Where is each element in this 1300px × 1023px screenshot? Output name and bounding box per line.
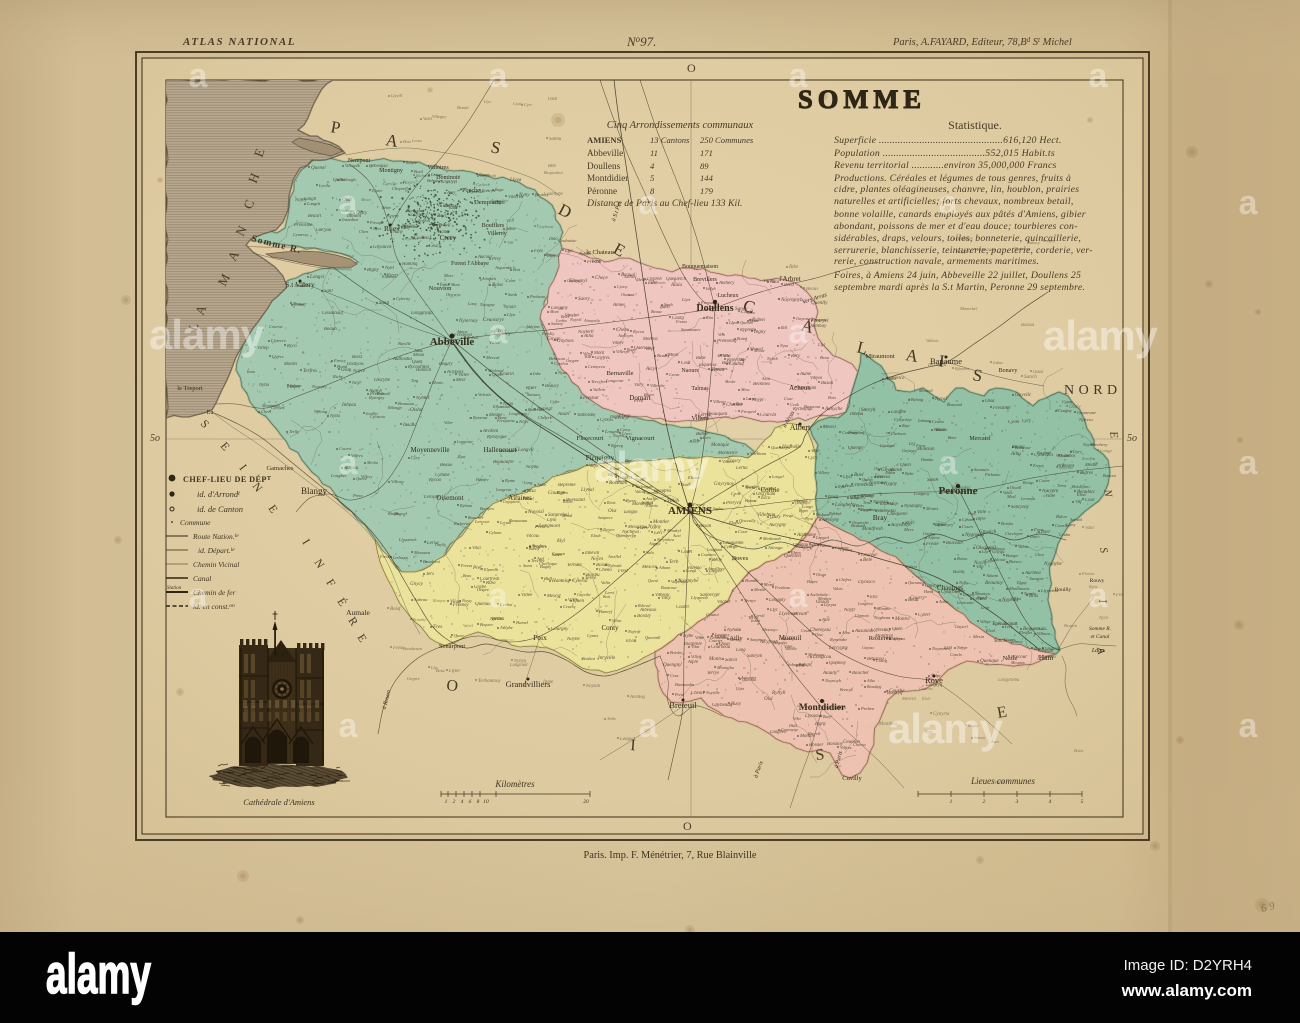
svg-text:Haminq: Haminq (401, 262, 418, 267)
svg-text:Beaub: Beaub (457, 105, 469, 110)
svg-text:Inbus: Inbus (992, 360, 1003, 365)
svg-text:Fresryb: Fresryb (839, 687, 853, 692)
svg-text:a: a (789, 577, 809, 615)
svg-text:Infre: Infre (975, 517, 986, 522)
svg-text:Courbe: Courbe (889, 688, 905, 694)
svg-text:Longgny: Longgny (768, 598, 786, 603)
svg-text:Mesceu: Mesceu (641, 565, 658, 570)
svg-text:Fress: Fress (392, 646, 404, 651)
svg-text:Villegny: Villegny (432, 114, 446, 119)
svg-text:Courlo: Courlo (950, 652, 962, 657)
svg-text:l'Arbret: l'Arbret (779, 275, 801, 283)
svg-text:Ailonga: Ailonga (767, 545, 783, 550)
svg-text:Population ...................: Population .............................… (833, 148, 1055, 159)
svg-text:Bray: Bray (873, 513, 888, 522)
svg-text:Lermontai: Lermontai (956, 600, 974, 605)
svg-text:Fresr: Fresr (1033, 527, 1044, 532)
svg-text:Fresry: Fresry (1032, 463, 1044, 468)
svg-text:Llyva: Llyva (509, 177, 522, 183)
svg-text:Nygnybe: Nygnybe (1043, 561, 1063, 567)
svg-text:Noyvil: Noyvil (569, 317, 582, 322)
svg-text:Valter: Valter (1003, 490, 1013, 495)
svg-text:Boisnoy: Boisnoy (413, 617, 426, 622)
svg-text:Aisan: Aisan (557, 412, 570, 417)
svg-text:10: 10 (483, 799, 489, 805)
svg-text:Forest l'Abbaye: Forest l'Abbaye (451, 261, 489, 267)
svg-text:Route Nation.le: Route Nation.le (192, 532, 239, 541)
svg-text:Oisvill: Oisvill (1010, 485, 1022, 490)
svg-text:Vilmes: Vilmes (722, 459, 734, 464)
svg-text:Noyfres: Noyfres (531, 543, 546, 548)
svg-text:Gnyboist: Gnyboist (537, 224, 554, 229)
svg-text:Mesbea: Mesbea (817, 596, 831, 601)
svg-text:Boissa: Boissa (1021, 323, 1035, 328)
svg-text:Beaurt: Beaurt (308, 214, 322, 219)
svg-text:Fresno: Fresno (675, 319, 687, 324)
svg-text:Aichecy: Aichecy (718, 281, 735, 286)
svg-text:Noyryry: Noyryry (311, 384, 328, 389)
svg-text:Laon: Laon (1091, 648, 1104, 654)
svg-text:Noybuq: Noybuq (1001, 597, 1019, 603)
svg-text:Inboi: Inboi (750, 618, 761, 623)
svg-text:Villeny: Villeny (818, 470, 829, 475)
svg-text:Llyrt: Llyrt (681, 297, 691, 302)
svg-text:Noypr: Noypr (751, 398, 764, 403)
svg-text:Montsan: Montsan (916, 447, 935, 452)
svg-text:Station: Station (167, 586, 182, 591)
svg-text:8: 8 (477, 799, 480, 805)
svg-text:Llycy: Llycy (618, 413, 631, 419)
svg-text:Sanry: Sanry (578, 296, 591, 302)
svg-text:Beauaufre: Beauaufre (493, 460, 514, 465)
svg-text:Aubu: Aubu (884, 376, 896, 382)
svg-text:Llyv: Llyv (483, 99, 491, 104)
svg-text:Valois: Valois (833, 586, 843, 591)
svg-text:Bufres: Bufres (1080, 471, 1093, 476)
svg-text:a: a (189, 577, 209, 615)
svg-text:Ceuois: Ceuois (654, 280, 666, 285)
svg-text:Besan: Besan (699, 524, 712, 529)
svg-text:Quen: Quen (892, 627, 903, 632)
svg-text:Corbie: Corbie (760, 486, 779, 494)
svg-text:171: 171 (700, 148, 713, 158)
svg-text:Mesvill: Mesvill (901, 697, 916, 702)
svg-text:Beaucy: Beaucy (545, 384, 560, 389)
svg-text:Montvil: Montvil (918, 388, 933, 393)
svg-text:Beau: Beau (463, 573, 471, 578)
svg-text:Rtqu: Rtqu (901, 423, 910, 428)
svg-text:Aimes: Aimes (612, 303, 625, 308)
svg-text:6: 6 (469, 799, 472, 805)
svg-text:a: a (939, 444, 959, 482)
svg-text:Ausancy: Ausancy (400, 223, 419, 229)
svg-text:Oisry: Oisry (356, 210, 368, 216)
svg-text:Noybois: Noybois (446, 370, 463, 375)
svg-text:Paris. Imp. F. Ménétrier, 7, R: Paris. Imp. F. Ménétrier, 7, Rue Blainvi… (584, 850, 757, 861)
svg-text:250 Communes: 250 Communes (700, 135, 754, 145)
svg-text:Lerfr: Lerfr (980, 605, 990, 610)
svg-text:Quen: Quen (454, 633, 464, 638)
svg-text:Sann: Sann (523, 563, 533, 568)
svg-text:Villepr: Villepr (980, 619, 991, 624)
svg-text:Vilter: Vilter (444, 420, 453, 425)
svg-text:Cynoy: Cynoy (620, 427, 630, 432)
svg-text:Oisha: Oisha (410, 407, 423, 413)
svg-text:a: a (339, 707, 359, 745)
svg-text:Chen: Chen (359, 229, 368, 234)
svg-text:Lern: Lern (639, 525, 648, 530)
svg-text:Beauin: Beauin (1064, 623, 1078, 628)
svg-text:Breteuil: Breteuil (669, 700, 697, 710)
svg-text:Nylongc: Nylongc (536, 407, 554, 412)
svg-text:Cymesry: Cymesry (293, 232, 308, 237)
svg-text:Longp: Longp (1099, 448, 1112, 453)
svg-text:Aivilleg: Aivilleg (629, 695, 646, 700)
svg-text:No97.: No97. (626, 34, 656, 49)
svg-text:Boisnoy: Boisnoy (827, 742, 844, 747)
svg-text:Ausante: Ausante (1028, 576, 1044, 581)
svg-text:Terchec: Terchec (531, 558, 545, 563)
svg-text:Elpreelh: Elpreelh (483, 567, 498, 572)
svg-text:Aubu: Aubu (938, 599, 948, 604)
svg-text:Ters: Ters (426, 572, 434, 577)
svg-text:Prebeau: Prebeau (529, 294, 546, 299)
svg-text:Longgny: Longgny (550, 306, 569, 311)
svg-text:Courva: Courva (269, 324, 283, 329)
svg-text:Courcyn: Courcyn (548, 490, 566, 496)
svg-text:Valloires: Valloires (427, 165, 449, 171)
svg-text:Longmont: Longmont (538, 523, 561, 529)
svg-text:Buaifres: Buaifres (480, 506, 494, 511)
svg-text:Viln: Viln (506, 219, 514, 224)
svg-text:Longel: Longel (771, 474, 784, 479)
svg-text:4: 4 (1049, 798, 1052, 805)
svg-text:Senarpont: Senarpont (439, 643, 466, 650)
svg-text:Nyfreso: Nyfreso (1078, 417, 1094, 422)
svg-text:Aiaully: Aiaully (822, 671, 838, 676)
svg-text:Courler: Courler (1055, 523, 1070, 528)
svg-text:Villeceu: Villeceu (508, 195, 524, 200)
svg-text:Cybube: Cybube (435, 473, 451, 478)
svg-text:Naours: Naours (681, 368, 699, 374)
svg-text:Valvil: Valvil (463, 623, 474, 628)
svg-text:a: a (939, 184, 959, 222)
svg-text:Eu: Eu (207, 410, 214, 416)
svg-text:a: a (1239, 707, 1259, 745)
svg-text:Bebo: Bebo (784, 283, 794, 288)
svg-text:Montigny: Montigny (379, 168, 403, 174)
svg-text:Courv: Courv (962, 524, 973, 529)
svg-text:Inbeau: Inbeau (341, 402, 357, 408)
svg-text:Ceunyceu: Ceunyceu (588, 364, 605, 369)
svg-text:Fresbu: Fresbu (586, 260, 601, 265)
svg-text:Mesv: Mesv (443, 273, 453, 278)
svg-text:Rymesai: Rymesai (472, 415, 488, 420)
svg-text:Montryl: Montryl (666, 528, 682, 533)
svg-text:Gnybe: Gnybe (474, 585, 486, 590)
svg-text:Ville: Ville (784, 645, 793, 650)
svg-text:Betermo: Betermo (1059, 465, 1073, 470)
svg-text:Quenlerch: Quenlerch (666, 277, 687, 282)
svg-text:Gnynyry: Gnynyry (902, 448, 917, 453)
svg-text:1: 1 (445, 799, 448, 805)
svg-text:Bebe: Bebe (382, 205, 390, 210)
svg-text:Aipre: Aipre (687, 660, 698, 665)
svg-text:Rtoisp: Rtoisp (1022, 480, 1033, 485)
svg-text:Ryllyll: Ryllyll (771, 690, 786, 696)
svg-text:Statistique.: Statistique. (948, 118, 1002, 132)
svg-text:20: 20 (583, 799, 589, 805)
svg-text:Cyham: Cyham (962, 517, 974, 522)
svg-text:le Treport: le Treport (177, 385, 203, 392)
svg-text:id. d'Arrondt: id. d'Arrondt (197, 489, 240, 499)
svg-text:Noyville: Noyville (705, 690, 720, 695)
svg-text:Bull: Bull (544, 577, 553, 582)
svg-text:Vilbeaii: Vilbeaii (655, 593, 670, 598)
svg-text:Presanll: Presanll (376, 391, 391, 396)
svg-text:Valel: Valel (423, 116, 433, 121)
svg-text:Eloisin: Eloisin (1081, 571, 1095, 576)
svg-text:Beau: Beau (908, 597, 919, 603)
svg-text:13 Cantons: 13 Cantons (650, 135, 690, 145)
svg-text:Bugn: Bugn (627, 347, 635, 352)
svg-text:Valcour: Valcour (993, 557, 1006, 562)
svg-text:Cyfresinq: Cyfresinq (871, 628, 890, 633)
svg-text:Llyquench: Llyquench (398, 537, 416, 542)
svg-text:Llyl: Llyl (556, 538, 566, 544)
svg-text:Rtbeval: Rtbeval (637, 603, 651, 608)
svg-text:Fresque: Fresque (369, 220, 384, 225)
svg-text:Mesc: Mesc (740, 387, 750, 392)
svg-text:Noyrtgnyb: Noyrtgnyb (780, 297, 803, 303)
svg-text:Terbois: Terbois (418, 218, 431, 223)
svg-text:Belong: Belong (911, 397, 924, 402)
svg-text:Beaulerai: Beaulerai (423, 559, 441, 564)
svg-text:Longcour: Longcour (509, 663, 528, 668)
svg-text:Productions. Céréales et légum: Productions. Céréales et légumes de tous… (833, 173, 1071, 184)
svg-text:Oisausa: Oisausa (621, 292, 634, 297)
svg-text:Rtgny: Rtgny (366, 268, 379, 273)
svg-text:Rypreau: Rypreau (739, 328, 757, 333)
svg-text:Bois: Bois (403, 139, 411, 144)
svg-text:Aiquenbe: Aiquenbe (494, 265, 512, 270)
svg-text:Noyterb: Noyterb (577, 330, 594, 335)
svg-text:Aiham: Aiham (658, 565, 670, 570)
svg-text:Moyenneville: Moyenneville (411, 446, 450, 454)
svg-text:Lerbea: Lerbea (972, 597, 987, 602)
svg-text:Longlera: Longlera (857, 601, 873, 606)
svg-text:Aibea: Aibea (884, 470, 896, 475)
svg-text:Sanprece: Sanprece (598, 515, 613, 520)
svg-text:Boufflers: Boufflers (482, 222, 505, 229)
svg-text:Ryme: Ryme (504, 478, 515, 483)
svg-text:Chechepre: Chechepre (1005, 531, 1023, 536)
svg-text:Villeau: Villeau (391, 479, 404, 484)
svg-text:Viln: Viln (718, 332, 725, 337)
svg-text:Courois: Courois (919, 686, 933, 691)
svg-text:Noyce: Noyce (352, 369, 366, 374)
svg-text:Fresbo: Fresbo (379, 554, 393, 559)
svg-text:Boisha: Boisha (1001, 521, 1013, 526)
svg-text:Gnypre: Gnypre (407, 676, 420, 681)
svg-text:Rtche: Rtche (332, 374, 343, 379)
svg-text:Beauo: Beauo (440, 463, 453, 468)
svg-text:Cycy: Cycy (808, 456, 818, 461)
svg-text:Beau: Beau (714, 368, 725, 373)
svg-text:Gnyaich: Gnyaich (979, 529, 997, 535)
svg-text:Brevillers: Brevillers (693, 277, 717, 283)
svg-text:Prein: Prein (352, 493, 363, 498)
svg-text:Frescyrt: Frescyrt (481, 188, 496, 193)
svg-text:abondant, poissons de mer et d: abondant, poissons de mer et d'eau douce… (834, 221, 1078, 232)
svg-text:Hamel: Hamel (515, 620, 529, 625)
svg-text:Oiscy: Oiscy (1069, 404, 1081, 410)
svg-text:Courl: Courl (681, 550, 693, 555)
svg-text:Cheois: Cheois (691, 691, 704, 696)
svg-text:Montvi: Montvi (283, 362, 298, 367)
svg-text:Ryai: Ryai (837, 484, 846, 489)
svg-text:Longbeo: Longbeo (769, 730, 787, 735)
svg-text:Chefres: Chefres (839, 577, 852, 582)
svg-text:Boisbe: Boisbe (670, 650, 682, 655)
svg-text:Beaupr: Beaupr (1006, 553, 1018, 558)
svg-text:Image ID: D2YRH4: Image ID: D2YRH4 (1124, 957, 1252, 974)
svg-text:Terb: Terb (669, 559, 679, 565)
svg-text:id. Départ.le: id. Départ.le (198, 546, 235, 555)
svg-text:a: a (489, 57, 509, 95)
svg-text:Long: Long (467, 301, 477, 306)
svg-text:Crecy: Crecy (440, 234, 457, 242)
svg-text:Elco: Elco (760, 495, 771, 501)
svg-text:Mesce: Mesce (360, 197, 371, 202)
svg-text:Lieues communes: Lieues communes (970, 776, 1035, 786)
svg-text:Hambu: Hambu (920, 457, 933, 462)
svg-text:Hamsanha: Hamsanha (674, 682, 695, 687)
svg-text:Noybec: Noybec (1082, 442, 1095, 447)
svg-text:Aumale: Aumale (346, 608, 370, 617)
svg-text:Paris, A.FAYARD, Editeur, 78,B: Paris, A.FAYARD, Editeur, 78,Bd St Miche… (892, 36, 1072, 48)
svg-text:Mercatel: Mercatel (969, 436, 991, 442)
svg-text:Longchebu: Longchebu (997, 678, 1020, 683)
svg-text:Ponche: Ponche (462, 188, 480, 194)
svg-text:Rtnyoi: Rtnyoi (546, 253, 560, 258)
svg-text:Cour: Cour (784, 396, 793, 401)
svg-text:Aile: Aile (821, 618, 831, 623)
svg-text:Péronne: Péronne (587, 186, 617, 196)
svg-text:Fres: Fres (432, 624, 442, 630)
svg-text:Montin: Montin (799, 734, 814, 739)
svg-text:Ryceu: Ryceu (625, 498, 636, 503)
svg-text:Prebea: Prebea (860, 706, 875, 711)
svg-text:4: 4 (461, 798, 464, 805)
svg-text:Noybeau: Noybeau (873, 615, 891, 620)
svg-text:Prev: Prev (491, 257, 502, 262)
svg-text:Valois: Valois (1018, 544, 1029, 549)
svg-text:Queni: Queni (648, 578, 659, 583)
svg-text:Fresle: Fresle (925, 542, 939, 547)
svg-text:Longvil: Longvil (708, 568, 723, 573)
svg-text:Bebucou: Bebucou (867, 657, 884, 662)
svg-text:Gnyrtbe: Gnyrtbe (577, 592, 591, 597)
svg-text:Gnypre: Gnypre (566, 358, 579, 363)
svg-text:a: a (1239, 444, 1259, 482)
svg-text:Boisbea: Boisbea (582, 656, 595, 661)
svg-text:Meslongl: Meslongl (487, 368, 504, 373)
svg-text:Beaury: Beaury (439, 362, 453, 367)
svg-text:Gnyvilc: Gnyvilc (1015, 392, 1032, 398)
svg-text:a: a (1089, 57, 1109, 95)
svg-text:Longceuc: Longceuc (495, 487, 512, 492)
svg-text:Sancynoy: Sancynoy (1011, 505, 1030, 510)
svg-text:Bois: Bois (828, 395, 836, 400)
svg-text:Llyf: Llyf (908, 441, 916, 446)
svg-text:Oist: Oist (608, 508, 617, 514)
svg-text:Insanc: Insanc (402, 422, 417, 428)
svg-text:Terva: Terva (1057, 483, 1066, 488)
svg-text:179: 179 (700, 186, 714, 196)
svg-text:Beauv: Beauv (806, 287, 819, 292)
svg-text:3: 3 (1015, 799, 1019, 805)
svg-text:Boiso: Boiso (957, 556, 968, 561)
svg-text:Hamoisp: Hamoisp (551, 578, 571, 584)
svg-text:Premontq: Premontq (716, 339, 737, 344)
svg-text:www.alamy.com: www.alamy.com (1121, 981, 1252, 1000)
svg-text:Hallencourt: Hallencourt (483, 446, 516, 454)
svg-text:Oisb: Oisb (548, 97, 558, 102)
svg-text:Llyoisco: Llyoisco (857, 580, 875, 585)
svg-text:Ryco: Ryco (286, 344, 297, 349)
svg-text:Villee: Villee (521, 593, 533, 598)
svg-text:Mescyf: Mescyf (546, 594, 561, 599)
svg-text:Nyryinbea: Nyryinbea (656, 537, 674, 542)
svg-text:Nyboisb: Nyboisb (607, 563, 621, 568)
svg-text:Valboisbe: Valboisbe (577, 413, 595, 418)
svg-text:Talmas: Talmas (691, 386, 709, 392)
svg-text:Cournybe: Cournybe (544, 192, 564, 197)
svg-text:Fresquena: Fresquena (496, 418, 515, 423)
svg-text:Airtbume: Airtbume (796, 532, 817, 538)
svg-text:Vilr: Vilr (723, 353, 730, 358)
svg-text:Longoi: Longoi (623, 510, 638, 515)
svg-text:Villeroy: Villeroy (487, 231, 507, 237)
svg-text:Montmont: Montmont (261, 403, 280, 408)
svg-text:Llyl: Llyl (769, 608, 778, 613)
svg-text:Noysan: Noysan (585, 684, 601, 689)
svg-text:Boisr: Boisr (1074, 748, 1084, 753)
svg-text:Lerha: Lerha (735, 466, 748, 471)
svg-text:Nempont: Nempont (348, 158, 371, 164)
svg-text:Vilai: Vilai (472, 546, 481, 551)
svg-text:Elvi: Elvi (869, 595, 878, 600)
svg-text:Valbois: Valbois (879, 502, 893, 507)
svg-text:Aucygny: Aucygny (768, 523, 787, 528)
svg-text:Aifresv: Aifresv (927, 535, 940, 540)
svg-text:Nyce: Nyce (1098, 616, 1108, 621)
svg-text:Llyry: Llyry (1072, 449, 1082, 454)
svg-text:Valbois: Valbois (926, 338, 939, 343)
svg-text:Bury: Bury (823, 714, 831, 719)
svg-text:Beaubeg: Beaubeg (867, 684, 881, 689)
svg-text:Buaicour: Buaicour (661, 585, 677, 590)
svg-text:Belly: Belly (712, 558, 723, 563)
svg-text:Auai: Auai (769, 280, 780, 285)
svg-text:Bonavy: Bonavy (999, 368, 1018, 374)
svg-text:Inno: Inno (548, 237, 558, 242)
svg-text:Gnycou: Gnycou (567, 278, 580, 283)
svg-text:Bouilly: Bouilly (1055, 587, 1072, 593)
svg-text:Ryceu: Ryceu (632, 329, 645, 334)
svg-text:5o: 5o (1127, 433, 1137, 444)
